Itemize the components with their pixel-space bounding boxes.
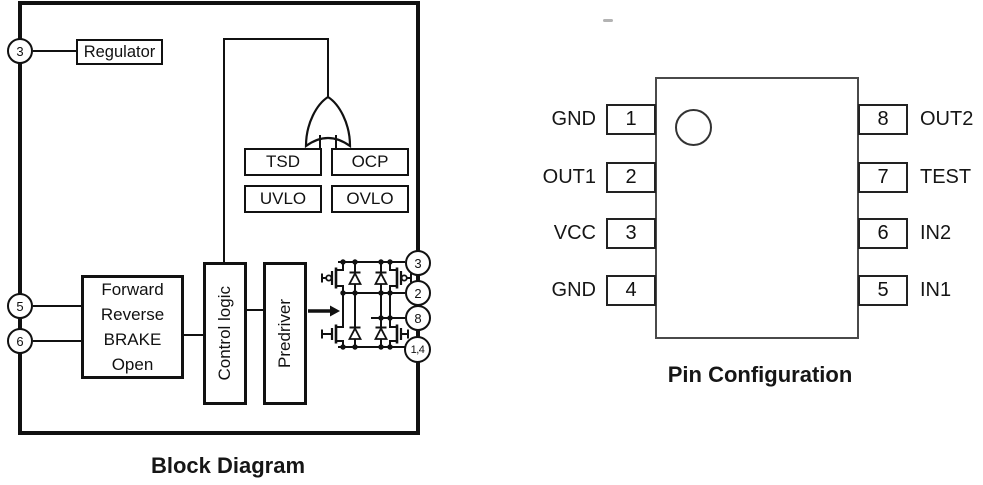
pin-number-7: 7 [877, 166, 888, 189]
protection-block-ocp: OCP [331, 148, 409, 176]
pin1-indicator-icon [675, 109, 712, 146]
pin-label-vcc: VCC [496, 220, 596, 246]
pin-number-4: 4 [625, 279, 636, 302]
mode-line-reverse: Reverse [101, 302, 164, 327]
pin-number-3: 3 [625, 222, 636, 245]
control-logic-block: Control logic [203, 262, 247, 405]
pin-box-2: 2 [606, 162, 656, 193]
uvlo-label: UVLO [260, 189, 306, 209]
pin-number-2: 2 [625, 166, 636, 189]
pin-label-gnd-4: GND [496, 277, 596, 303]
border-pin-3-top: 3 [7, 38, 33, 64]
tsd-label: TSD [266, 152, 300, 172]
mode-decoder-block: Forward Reverse BRAKE Open [81, 275, 184, 379]
ovlo-label: OVLO [346, 189, 393, 209]
border-pin-6-label: 6 [16, 334, 23, 349]
pin-label-in1: IN1 [920, 277, 983, 303]
pin-box-4: 4 [606, 275, 656, 306]
pin-box-8: 8 [858, 104, 908, 135]
protection-block-uvlo: UVLO [244, 185, 322, 213]
block-diagram-caption: Block Diagram [78, 453, 378, 479]
pin-label-out1: OUT1 [496, 164, 596, 190]
pin-configuration-caption: Pin Configuration [605, 362, 915, 388]
pin-box-3: 3 [606, 218, 656, 249]
control-logic-label: Control logic [215, 286, 235, 381]
protection-block-ovlo: OVLO [331, 185, 409, 213]
predriver-label: Predriver [275, 299, 295, 368]
regulator-block: Regulator [76, 39, 163, 65]
pin-number-5: 5 [877, 279, 888, 302]
border-pin-1-4-right: 1,4 [404, 336, 431, 363]
border-pin-3-right-label: 3 [414, 256, 421, 271]
border-pin-3-top-label: 3 [16, 44, 23, 59]
border-pin-5: 5 [7, 293, 33, 319]
pin-box-5: 5 [858, 275, 908, 306]
mode-line-open: Open [112, 352, 154, 377]
pin-box-7: 7 [858, 162, 908, 193]
pin-label-gnd-1: GND [496, 106, 596, 132]
predriver-block: Predriver [263, 262, 307, 405]
pin-box-6: 6 [858, 218, 908, 249]
pin-number-8: 8 [877, 108, 888, 131]
border-pin-5-label: 5 [16, 299, 23, 314]
border-pin-1-4-right-label: 1,4 [411, 344, 425, 356]
pin-label-test: TEST [920, 164, 983, 190]
pin-box-1: 1 [606, 104, 656, 135]
mode-line-brake: BRAKE [104, 327, 162, 352]
border-pin-2-right-label: 2 [414, 286, 421, 301]
artifact-dash [603, 19, 613, 22]
ocp-label: OCP [352, 152, 389, 172]
protection-block-tsd: TSD [244, 148, 322, 176]
pin-label-out2: OUT2 [920, 106, 983, 132]
border-pin-2-right: 2 [405, 280, 431, 306]
datasheet-figure: Regulator TSD OCP UVLO OVLO Forward Reve… [0, 0, 983, 485]
border-pin-8-right: 8 [405, 305, 431, 331]
pin-number-6: 6 [877, 222, 888, 245]
border-pin-8-right-label: 8 [414, 311, 421, 326]
border-pin-3-right: 3 [405, 250, 431, 276]
pin-label-in2: IN2 [920, 220, 983, 246]
mode-line-forward: Forward [101, 277, 163, 302]
regulator-label: Regulator [84, 43, 156, 62]
pin-number-1: 1 [625, 108, 636, 131]
border-pin-6: 6 [7, 328, 33, 354]
